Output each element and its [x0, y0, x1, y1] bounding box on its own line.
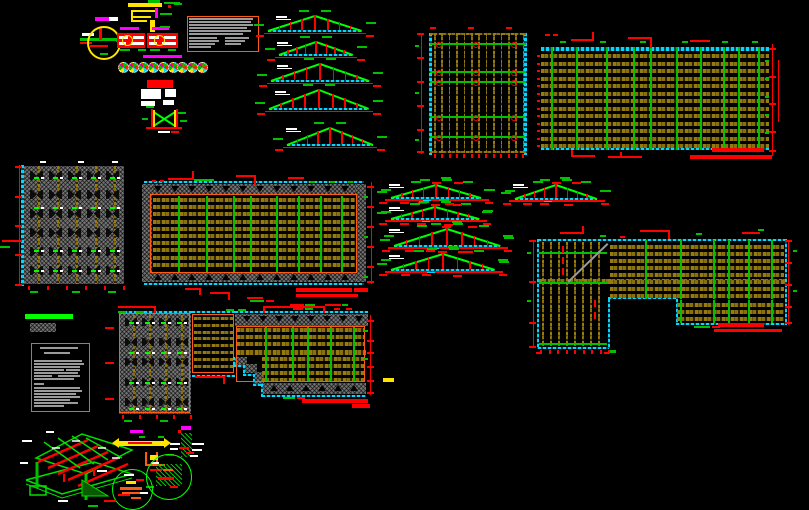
- tick: [152, 382, 155, 384]
- dim-tick: [485, 154, 487, 158]
- mark: [143, 55, 182, 58]
- dim-text: [442, 179, 452, 181]
- truss-label: [276, 16, 287, 18]
- truss-web: [356, 103, 358, 108]
- tick: [79, 270, 82, 272]
- dim-text: [314, 122, 324, 124]
- mark: [80, 42, 92, 44]
- truss-web: [406, 240, 408, 245]
- mark: [529, 281, 536, 283]
- truss-web: [482, 264, 484, 269]
- dim-text: [256, 35, 264, 37]
- truss-symbol: [176, 378, 188, 386]
- dim-text: [377, 263, 387, 265]
- truss-symbol: [159, 338, 171, 346]
- tick: [136, 352, 139, 354]
- dim-tick: [537, 123, 540, 125]
- dim-tick: [471, 154, 473, 158]
- dim-text: [377, 136, 387, 138]
- truss-symbol: [142, 398, 154, 406]
- triangle-symbol: [270, 385, 278, 391]
- note-text-line: [189, 37, 217, 39]
- dim-text: [453, 223, 463, 225]
- mark: [164, 36, 176, 39]
- joist: [153, 234, 355, 238]
- dim-tick: [537, 70, 540, 72]
- tick: [60, 250, 63, 252]
- joist: [541, 107, 769, 111]
- mark: [640, 230, 670, 232]
- truss-web: [327, 19, 329, 30]
- tick: [34, 250, 39, 252]
- dim-text: [454, 182, 463, 184]
- dim-text: [379, 223, 387, 225]
- dim-tick: [28, 286, 30, 290]
- tick: [117, 270, 120, 272]
- truss-web: [431, 232, 433, 245]
- dim-text: [540, 203, 549, 205]
- truss-web: [339, 22, 341, 30]
- mark: [506, 27, 512, 29]
- mark: [141, 89, 161, 99]
- mark: [119, 42, 126, 45]
- joist: [153, 227, 355, 231]
- dim-tick: [557, 350, 559, 354]
- mark: [765, 78, 769, 80]
- joist: [194, 351, 233, 354]
- dim-text: [267, 59, 275, 61]
- mark: [186, 452, 194, 454]
- truss-top-chord: [394, 228, 448, 247]
- mark: [752, 41, 758, 43]
- mark: [136, 311, 144, 313]
- joist: [153, 263, 355, 267]
- mark: [608, 156, 642, 158]
- mark: [168, 178, 194, 180]
- triangle-symbol: [205, 186, 213, 192]
- truss-label: [277, 42, 288, 44]
- mark: [162, 42, 176, 45]
- mark: [468, 27, 474, 29]
- dim-tick: [583, 350, 585, 354]
- tick: [177, 322, 182, 324]
- dim-text: [420, 179, 430, 181]
- dim-text: [504, 237, 514, 239]
- dim-text: [503, 235, 513, 237]
- dim-text: [382, 250, 390, 252]
- truss-bottom-chord: [268, 30, 362, 32]
- mark: [529, 322, 536, 324]
- triangle-symbol: [350, 385, 358, 391]
- dim-text: [427, 272, 435, 273]
- grayhatch: [262, 383, 366, 394]
- dim-text: [479, 225, 489, 227]
- dim-text: [321, 10, 331, 12]
- tick: [145, 352, 150, 354]
- tick: [177, 382, 182, 384]
- tick: [129, 322, 134, 324]
- truss-top-chord: [319, 89, 370, 110]
- truss-bottom-chord: [287, 144, 373, 146]
- batten: [133, 315, 135, 412]
- truss-symbol: [49, 171, 62, 180]
- truss-web: [469, 193, 471, 197]
- triangle-symbol: [324, 186, 332, 192]
- truss-symbol: [159, 378, 171, 386]
- tick: [60, 270, 63, 272]
- mark: [765, 132, 769, 134]
- truss-top-chord: [316, 41, 354, 56]
- mark: [145, 452, 147, 466]
- mark: [178, 430, 181, 433]
- truss-top-chord: [279, 41, 317, 56]
- dim-text: [544, 201, 552, 202]
- tick: [184, 382, 187, 384]
- mark: [785, 322, 792, 324]
- truss-web: [306, 67, 308, 80]
- dim-text: [377, 191, 387, 193]
- joist: [493, 33, 495, 153]
- mark: [199, 288, 201, 295]
- truss-symbol: [106, 228, 119, 237]
- mark: [640, 41, 646, 43]
- joist: [464, 33, 466, 153]
- dim-tick: [156, 415, 158, 419]
- truss-web: [294, 71, 296, 80]
- purlin: [680, 240, 682, 299]
- purlin: [713, 300, 715, 323]
- mark: [95, 17, 109, 21]
- truss-symbol: [87, 171, 100, 180]
- tick: [79, 207, 82, 209]
- truss-top-chord: [268, 15, 316, 32]
- dim-text: [503, 203, 511, 205]
- triangle-symbol: [239, 186, 247, 192]
- mark: [367, 246, 374, 248]
- mark: [263, 306, 325, 308]
- truss-web: [435, 184, 437, 197]
- triangle-symbol: [334, 385, 342, 391]
- mark: [25, 314, 73, 319]
- mark: [163, 100, 174, 105]
- dim-text: [336, 122, 346, 124]
- tick: [145, 322, 150, 324]
- truss-symbol: [68, 190, 81, 199]
- mark: [170, 448, 178, 450]
- joist: [441, 33, 443, 153]
- mark: [560, 41, 566, 43]
- triangle-symbol: [154, 186, 162, 192]
- note-text-line: [225, 43, 241, 45]
- note-text-line: [34, 378, 74, 380]
- dim-text: [485, 189, 495, 191]
- note-text-line: [66, 369, 80, 371]
- batten: [38, 166, 40, 284]
- truss-symbol: [125, 398, 137, 406]
- note-text-line: [34, 360, 82, 362]
- truss-label: [389, 207, 400, 209]
- dim-text: [453, 275, 462, 277]
- truss-web: [401, 193, 403, 197]
- mark: [415, 92, 419, 94]
- truss-symbol: [142, 338, 154, 346]
- mark: [149, 36, 159, 39]
- truss-label-underline: [277, 68, 292, 69]
- tick: [136, 382, 139, 384]
- mark: [170, 486, 178, 488]
- mark: [388, 247, 508, 249]
- mark: [146, 106, 154, 108]
- truss-symbol: [87, 209, 100, 218]
- purlin: [206, 196, 208, 272]
- tick: [184, 408, 187, 410]
- purlin: [539, 252, 607, 254]
- dim-text: [418, 202, 427, 204]
- joist: [610, 259, 784, 263]
- joist: [237, 328, 365, 332]
- mark: [266, 300, 274, 302]
- mark: [533, 240, 534, 348]
- mark: [509, 200, 605, 202]
- dim-text: [474, 250, 484, 252]
- truss-web: [297, 139, 299, 144]
- truss-web: [282, 75, 284, 80]
- note-text-line: [34, 390, 82, 392]
- mark: [108, 291, 116, 293]
- mark: [785, 306, 792, 308]
- joist: [153, 256, 355, 260]
- cyanband: [144, 283, 364, 285]
- truss-web: [461, 232, 463, 245]
- dim-text: [560, 177, 570, 179]
- triangle-symbol: [290, 186, 298, 192]
- grayhatch: [142, 184, 366, 194]
- joist-h: [608, 279, 786, 284]
- batten: [165, 315, 167, 412]
- truss-symbol: [106, 171, 119, 180]
- dim-tick: [537, 55, 540, 57]
- triangle-symbol: [290, 274, 298, 280]
- dim-text: [499, 261, 509, 263]
- cyanband: [233, 365, 243, 367]
- joist: [153, 198, 355, 202]
- tick: [129, 382, 134, 384]
- note-text-line: [189, 27, 247, 29]
- mark: [118, 311, 126, 313]
- triangle-symbol: [164, 438, 171, 448]
- cyanband: [538, 239, 786, 241]
- truss-bottom-chord: [391, 197, 481, 199]
- mark: [302, 399, 368, 403]
- mark: [133, 36, 144, 39]
- joist: [541, 99, 769, 103]
- dim-text: [562, 179, 572, 181]
- truss-symbol: [49, 209, 62, 218]
- note-text-line: [34, 387, 80, 389]
- connector-mark: [473, 80, 479, 86]
- mark: [228, 292, 230, 300]
- truss-symbol: [106, 209, 119, 218]
- truss-web: [344, 98, 346, 108]
- mark: [417, 129, 424, 131]
- truss-label-underline: [276, 19, 291, 20]
- mark: [190, 455, 198, 457]
- dim-tick: [190, 415, 192, 419]
- joist-h: [539, 279, 608, 284]
- truss-web: [307, 135, 309, 144]
- mark: [145, 464, 165, 466]
- cyanband: [608, 297, 678, 299]
- dim-text: [377, 212, 387, 214]
- mark: [348, 181, 353, 183]
- tick: [168, 322, 171, 324]
- mark: [712, 148, 764, 152]
- tick: [110, 250, 115, 252]
- joist: [508, 33, 510, 153]
- mark: [15, 166, 22, 168]
- mark: [668, 230, 670, 239]
- dim-text: [441, 177, 451, 179]
- joist: [194, 344, 233, 347]
- dim-text: [552, 182, 561, 184]
- dim-text: [379, 202, 387, 204]
- mark: [417, 81, 424, 83]
- dim-text: [384, 235, 394, 237]
- joist: [237, 335, 365, 339]
- dim-tick: [574, 350, 576, 354]
- note-text-line: [189, 21, 251, 23]
- truss-symbol: [30, 209, 43, 218]
- connector-mark: [511, 135, 517, 141]
- connector-mark: [511, 80, 517, 86]
- tick: [117, 207, 120, 209]
- cyanband: [262, 395, 366, 397]
- mark: [168, 5, 171, 8]
- truss-top-chord: [391, 253, 444, 271]
- mark: [195, 376, 225, 378]
- truss-web: [448, 187, 450, 197]
- truss-web: [356, 75, 358, 80]
- mark: [600, 235, 606, 237]
- mark: [116, 40, 122, 42]
- purlin: [353, 326, 355, 381]
- dim-text: [452, 221, 462, 223]
- tick: [53, 177, 58, 179]
- dim-tick: [47, 286, 49, 290]
- joist: [610, 294, 784, 298]
- truss-web: [280, 103, 282, 108]
- isometric-roof-view[interactable]: [24, 428, 136, 508]
- mark: [296, 288, 352, 292]
- truss-label-underline: [389, 210, 404, 211]
- dim-text: [304, 58, 314, 60]
- note-text-line: [34, 366, 80, 368]
- triangle-symbol: [188, 274, 196, 280]
- mark: [367, 380, 374, 382]
- dim-text: [600, 190, 610, 192]
- note-text-line: [225, 37, 249, 39]
- tick: [117, 177, 120, 179]
- truss-label-underline: [286, 131, 301, 132]
- tick: [129, 352, 134, 354]
- dim-text: [422, 274, 431, 276]
- truss-symbol: [49, 190, 62, 199]
- mark: [620, 236, 625, 238]
- mark: [283, 397, 295, 399]
- cad-canvas[interactable]: [0, 0, 809, 510]
- truss-web: [332, 94, 334, 108]
- mark: [370, 315, 371, 395]
- note-text-line: [34, 393, 76, 395]
- connector-mark: [473, 70, 479, 76]
- mark: [168, 49, 176, 51]
- truss-symbol: [125, 358, 137, 366]
- mark: [142, 118, 148, 120]
- batten: [57, 166, 59, 284]
- mark: [545, 34, 550, 36]
- grayhatch: [142, 184, 152, 282]
- mark: [323, 306, 325, 313]
- connector-mark: [511, 42, 517, 48]
- mark: [364, 358, 368, 360]
- purlin: [723, 47, 725, 150]
- joist: [153, 248, 355, 252]
- connector-symbol: [187, 62, 198, 73]
- dim-text: [485, 202, 493, 204]
- joist: [677, 317, 784, 321]
- mark: [383, 378, 394, 382]
- truss-symbol: [30, 247, 43, 256]
- joist: [541, 144, 769, 148]
- mark: [562, 268, 564, 275]
- mark: [296, 294, 358, 297]
- truss-symbol: [125, 338, 137, 346]
- joist: [478, 33, 480, 153]
- truss-web: [544, 188, 546, 198]
- grayhatch: [30, 323, 56, 332]
- mark: [148, 0, 160, 3]
- truss-symbol: [87, 190, 100, 199]
- truss-symbol: [142, 318, 154, 326]
- grayhatch: [119, 313, 191, 414]
- purlin: [178, 196, 180, 272]
- mark: [156, 452, 158, 462]
- joist: [471, 33, 473, 153]
- truss-web: [423, 187, 425, 197]
- cyanband: [676, 323, 786, 325]
- mark: [265, 111, 373, 112]
- mark: [133, 16, 151, 18]
- truss-web: [434, 206, 436, 218]
- purlin: [713, 240, 715, 299]
- grayhatch: [235, 357, 247, 366]
- truss-web: [469, 261, 471, 269]
- truss-top-chord: [330, 127, 374, 146]
- mark: [99, 28, 102, 40]
- tick: [152, 322, 155, 324]
- dim-text: [572, 182, 581, 184]
- truss-top-chord: [436, 184, 482, 199]
- dim-tick: [478, 154, 480, 158]
- mark: [765, 96, 769, 98]
- tick: [41, 270, 44, 272]
- dim-tick: [540, 350, 542, 354]
- mark: [152, 27, 169, 30]
- dim-text: [564, 204, 573, 206]
- truss-web: [326, 44, 328, 54]
- note-text-line: [58, 375, 80, 377]
- cyanband: [144, 181, 364, 183]
